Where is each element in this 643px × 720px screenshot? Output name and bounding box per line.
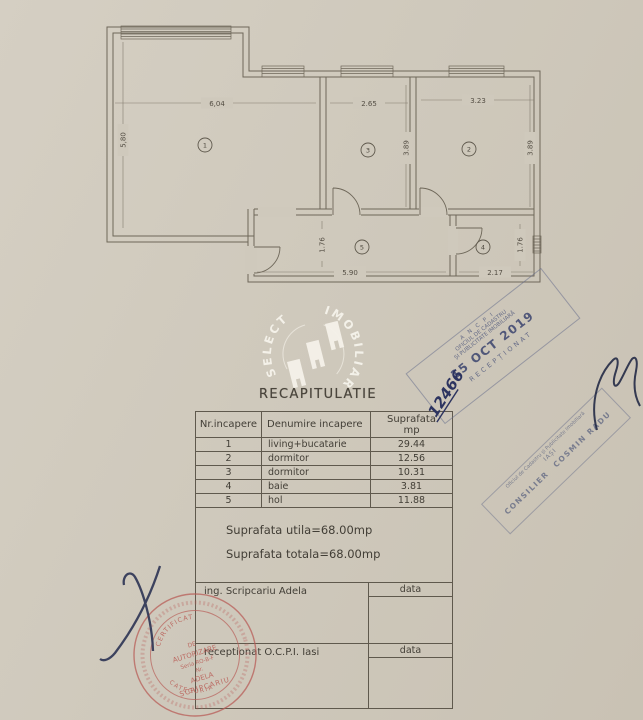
room-number: 2 bbox=[467, 145, 471, 153]
dim-room1-width: 6,04 bbox=[209, 100, 225, 108]
table-row: 3 dormitor 10.31 bbox=[196, 466, 452, 480]
suprafata-totala: Suprafata totala=68.00mp bbox=[226, 537, 452, 561]
table-row: 2 dormitor 12.56 bbox=[196, 452, 452, 466]
room-number: 3 bbox=[366, 146, 370, 154]
table-row: 5 hol 11.88 bbox=[196, 494, 452, 508]
table-row: 4 baie 3.81 bbox=[196, 480, 452, 494]
room-number: 5 bbox=[360, 243, 364, 251]
date-label: data bbox=[369, 583, 452, 597]
door-arc bbox=[456, 228, 482, 254]
dim-room4-width: 2.17 bbox=[487, 269, 503, 277]
svg-text:DE: DE bbox=[187, 640, 197, 649]
room-number: 1 bbox=[203, 141, 207, 149]
window-hatch bbox=[121, 26, 541, 253]
interior-walls bbox=[248, 77, 534, 276]
header-denumire: Denumire incapere bbox=[262, 412, 371, 437]
watermark-text-select: SELECT bbox=[260, 311, 291, 380]
scanned-paper: 6,04 5,80 2.65 3.23 3.89 3.89 5.90 2.17 … bbox=[0, 0, 643, 720]
dim-room3-height: 3.89 bbox=[403, 140, 411, 156]
date-label: data bbox=[369, 644, 452, 658]
dim-room4-height: 1.76 bbox=[517, 237, 525, 253]
reception-date: 15 OCT 2019 bbox=[421, 287, 564, 403]
table-row: 1 living+bucatarie 29.44 bbox=[196, 438, 452, 452]
svg-text:SELECT: SELECT bbox=[260, 311, 291, 380]
dim-room3-width: 2.65 bbox=[361, 100, 377, 108]
room-number: 4 bbox=[481, 243, 485, 251]
watermark-logo-bar bbox=[306, 340, 325, 369]
dim-room5-width: 5.90 bbox=[342, 269, 358, 277]
certificate-round-stamp: CERTIFICAT DE AUTORIZARE Seria RO-B-F Nr… bbox=[112, 572, 282, 720]
door-arc bbox=[254, 247, 280, 273]
consilier-stamp: Oficiul de Cadastru și Publicitate Imobi… bbox=[481, 388, 631, 535]
header-nr: Nr.incapere bbox=[196, 412, 262, 437]
room-number-circles bbox=[198, 138, 490, 254]
watermark-logo-bar bbox=[287, 359, 306, 388]
table-header-row: Nr.incapere Denumire incapere Suprafata … bbox=[196, 412, 452, 438]
floor-plan: 6,04 5,80 2.65 3.23 3.89 3.89 5.90 2.17 … bbox=[0, 0, 643, 300]
dim-room1-height: 5,80 bbox=[120, 132, 128, 148]
suprafata-utila: Suprafata utila=68.00mp bbox=[226, 508, 452, 537]
door-openings bbox=[245, 207, 458, 274]
dim-room5-height: 1.76 bbox=[319, 237, 327, 253]
dim-room2-height: 3.89 bbox=[527, 140, 535, 156]
recap-title: RECAPITULATIE bbox=[259, 387, 377, 402]
dim-room2-width: 3.23 bbox=[470, 97, 486, 105]
